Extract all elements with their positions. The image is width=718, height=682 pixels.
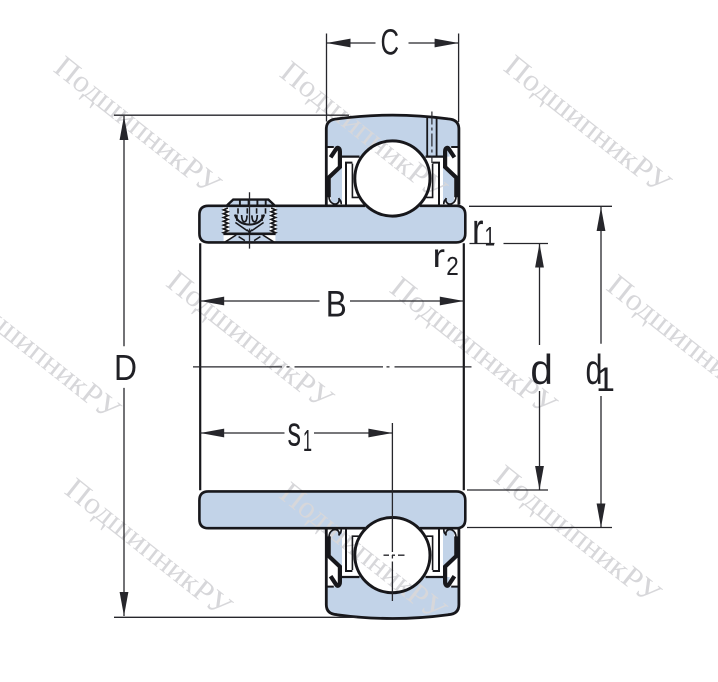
- svg-text:ПодшипникРУ: ПодшипникРУ: [48, 49, 228, 202]
- svg-text:1: 1: [303, 423, 312, 458]
- svg-text:ПодшипникРУ: ПодшипникРУ: [488, 458, 668, 611]
- svg-text:C: C: [381, 22, 400, 63]
- svg-text:s: s: [288, 408, 302, 455]
- svg-text:ПодшипникРУ: ПодшипникРУ: [0, 274, 128, 427]
- svg-text:ПодшипникРУ: ПодшипникРУ: [498, 48, 678, 201]
- svg-text:r: r: [433, 237, 446, 274]
- svg-text:d: d: [530, 346, 553, 393]
- svg-text:2: 2: [446, 251, 459, 281]
- svg-text:1: 1: [596, 361, 615, 399]
- svg-text:ПодшипникРУ: ПодшипникРУ: [160, 263, 340, 416]
- svg-text:D: D: [114, 347, 137, 388]
- svg-text:1: 1: [485, 221, 496, 251]
- svg-text:B: B: [326, 284, 347, 325]
- svg-text:r: r: [472, 205, 484, 253]
- svg-text:ПодшипникРУ: ПодшипникРУ: [601, 267, 718, 420]
